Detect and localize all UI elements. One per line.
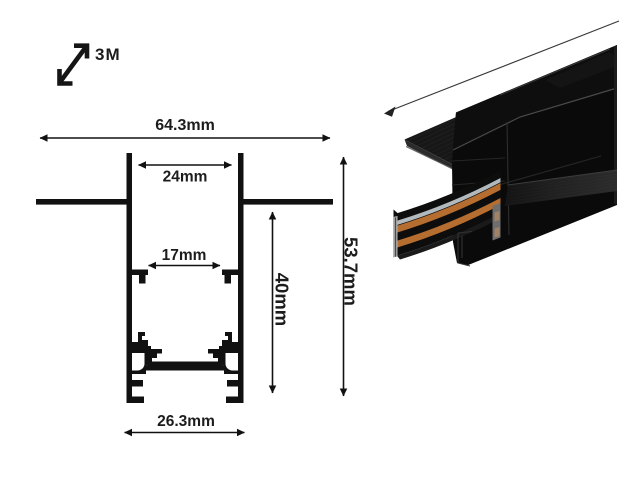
svg-text:64.3mm: 64.3mm (155, 117, 215, 134)
svg-text:26.3mm: 26.3mm (157, 413, 215, 430)
svg-text:53.7mm: 53.7mm (341, 237, 362, 306)
svg-text:17mm: 17mm (162, 247, 207, 264)
svg-text:40mm: 40mm (272, 273, 293, 326)
svg-text:3M: 3M (95, 45, 121, 64)
svg-text:24mm: 24mm (163, 169, 208, 186)
